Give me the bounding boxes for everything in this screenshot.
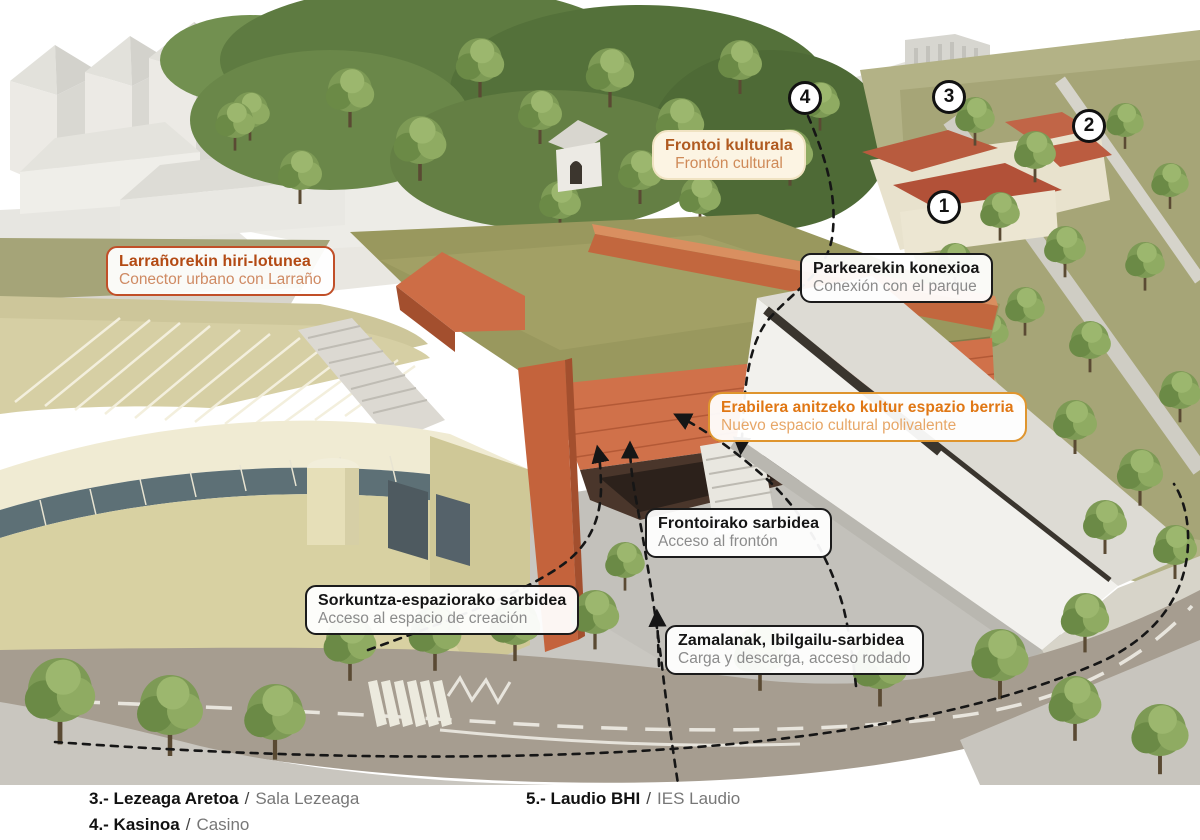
legend-item-laudio-bhi: 5.- Laudio BHI/IES Laudio <box>526 789 740 809</box>
callout-subtitle: Acceso al espacio de creación <box>318 610 566 628</box>
callout-subtitle: Conector urbano con Larraño <box>119 271 322 289</box>
legend-separator: / <box>646 789 651 808</box>
numbered-marker-2: 2 <box>1072 109 1106 143</box>
numbered-marker-4: 4 <box>788 81 822 115</box>
legend-spanish-name: Sala Lezeaga <box>255 789 359 808</box>
legend-separator: / <box>245 789 250 808</box>
site-plan-rendering: Frontoi kulturala Frontón cultural Larra… <box>0 0 1200 840</box>
callout-multiuse-space: Erabilera anitzeko kultur espazio berria… <box>708 392 1027 442</box>
callout-title: Zamalanak, Ibilgailu-sarbidea <box>678 632 911 650</box>
callout-fronton-cultural: Frontoi kulturala Frontón cultural <box>652 130 806 180</box>
callout-fronton-access: Frontoirako sarbidea Acceso al frontón <box>645 508 832 558</box>
callout-subtitle: Acceso al frontón <box>658 533 819 551</box>
callout-creation-space-access: Sorkuntza-espaziorako sarbidea Acceso al… <box>305 585 579 635</box>
callout-title: Erabilera anitzeko kultur espazio berria <box>721 399 1014 417</box>
callout-title: Larrañorekin hiri-lotunea <box>119 253 322 271</box>
legend-item-kasinoa: 4.- Kasinoa/Casino <box>89 815 249 835</box>
legend-spanish-name: IES Laudio <box>657 789 740 808</box>
callout-title: Parkearekin konexioa <box>813 260 980 278</box>
aerial-render-scene <box>0 0 1200 785</box>
callout-subtitle: Carga y descarga, acceso rodado <box>678 650 911 668</box>
legend: 3.- Lezeaga Aretoa/Sala Lezeaga 4.- Kasi… <box>0 785 1200 840</box>
callout-subtitle: Frontón cultural <box>665 155 793 173</box>
legend-separator: / <box>186 815 191 834</box>
legend-basque-name: 5.- Laudio BHI <box>526 789 640 808</box>
callout-subtitle: Conexión con el parque <box>813 278 980 296</box>
callout-title: Frontoi kulturala <box>665 137 793 155</box>
callout-title: Frontoirako sarbidea <box>658 515 819 533</box>
callout-park-connection: Parkearekin konexioa Conexión con el par… <box>800 253 993 303</box>
numbered-marker-1: 1 <box>927 190 961 224</box>
legend-basque-name: 4.- Kasinoa <box>89 815 180 834</box>
callout-loading-access: Zamalanak, Ibilgailu-sarbidea Carga y de… <box>665 625 924 675</box>
legend-basque-name: 3.- Lezeaga Aretoa <box>89 789 239 808</box>
legend-spanish-name: Casino <box>196 815 249 834</box>
callout-title: Sorkuntza-espaziorako sarbidea <box>318 592 566 610</box>
legend-item-lezeaga: 3.- Lezeaga Aretoa/Sala Lezeaga <box>89 789 359 809</box>
callout-larrano-connector: Larrañorekin hiri-lotunea Conector urban… <box>106 246 335 296</box>
callout-subtitle: Nuevo espacio cultural polivalente <box>721 417 1014 435</box>
numbered-marker-3: 3 <box>932 80 966 114</box>
